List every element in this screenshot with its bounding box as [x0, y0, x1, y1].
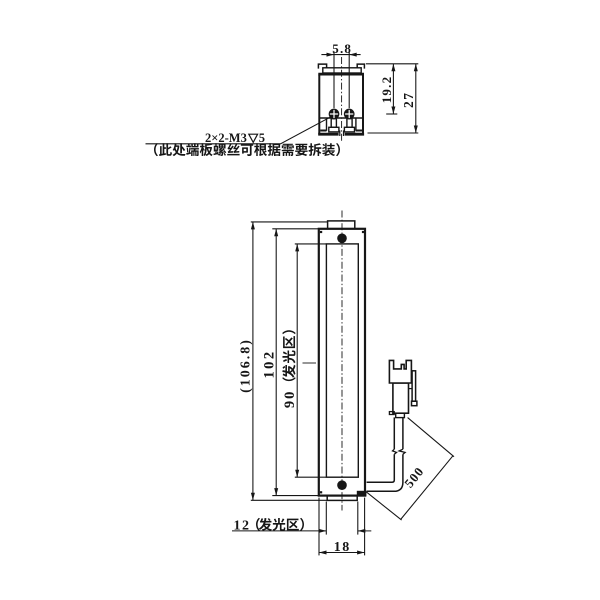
svg-text:5: 5 — [259, 131, 265, 145]
svg-text:(106.8): (106.8) — [238, 338, 253, 393]
svg-text:27: 27 — [401, 92, 416, 109]
svg-text:90: 90 — [282, 390, 298, 409]
svg-text:5.8: 5.8 — [332, 41, 352, 56]
svg-text:2×2-M3: 2×2-M3 — [205, 131, 247, 145]
svg-text:19.2: 19.2 — [379, 76, 394, 104]
svg-text:102: 102 — [262, 350, 278, 379]
svg-text:18: 18 — [334, 540, 351, 555]
